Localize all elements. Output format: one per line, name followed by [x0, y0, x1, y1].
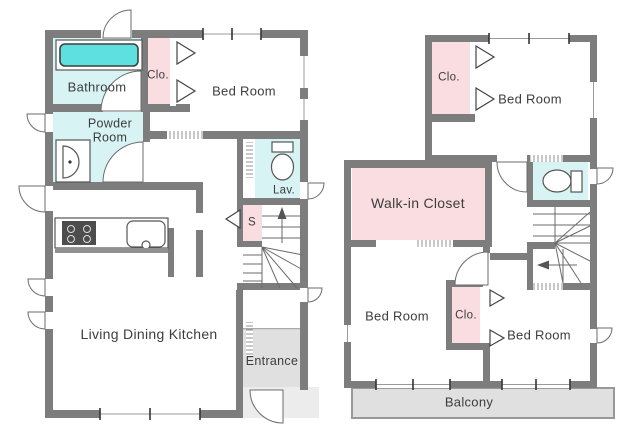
- floor-plan: Bathroom Clo. Bed Room Powder Room Lav. …: [0, 0, 640, 447]
- label-living-dining-kitchen: Living Dining Kitchen: [80, 326, 217, 342]
- label-powder-room: Powder Room: [76, 117, 144, 146]
- bedroom-door-arc: [455, 252, 488, 285]
- counter-edge: [55, 248, 168, 253]
- stove-icon: [62, 221, 96, 245]
- bifold-door-icon: [177, 80, 195, 102]
- label-storage: S: [248, 216, 256, 229]
- folding-door: [246, 322, 253, 358]
- folding-door: [167, 131, 203, 139]
- label-bathroom: Bathroom: [68, 81, 127, 96]
- label-entrance: Entrance: [246, 354, 298, 368]
- casement-window-arc: [597, 168, 613, 184]
- folding-door: [246, 142, 253, 178]
- toilet-icon: [543, 170, 571, 192]
- toilet-tank: [272, 142, 293, 152]
- bifold-door-icon: [476, 46, 494, 68]
- label-closet2: Clo.: [438, 71, 460, 84]
- label-bedroom4: Bed Room: [507, 329, 571, 344]
- sink-drain: [68, 160, 71, 163]
- casement-window-arc: [597, 328, 612, 343]
- small-window: [530, 155, 563, 162]
- casement-window-arc: [28, 312, 45, 329]
- entrance-step: [243, 328, 300, 330]
- bifold-door-icon: [177, 42, 195, 64]
- label-bedroom1: Bed Room: [212, 85, 276, 100]
- toilet-door-arc: [497, 162, 527, 192]
- bathtub-icon: [60, 44, 138, 66]
- faucet-icon: [142, 241, 150, 249]
- exterior-door-arc: [103, 10, 131, 38]
- casement-window-arc: [308, 288, 322, 302]
- casement-window-arc: [28, 279, 45, 296]
- front-door-arc: [250, 390, 283, 423]
- label-walk-in-closet: Walk-in Closet: [371, 195, 465, 211]
- label-bedroom3: Bed Room: [365, 310, 429, 325]
- bifold-door-icon: [490, 330, 504, 346]
- floor2: [344, 33, 614, 418]
- toilet-tank: [571, 171, 582, 192]
- floor2-fixtures: [543, 170, 582, 192]
- label-closet1: Clo.: [147, 69, 169, 82]
- bifold-door-icon: [476, 88, 494, 110]
- casement-window-arc: [19, 186, 45, 212]
- sliding-door: [415, 240, 453, 247]
- bifold-door-icon: [226, 210, 240, 228]
- stairs-down-arrow: [537, 261, 549, 270]
- stair-rail: [533, 283, 563, 290]
- label-bedroom2: Bed Room: [498, 93, 562, 108]
- floor-plan-canvas: [0, 0, 640, 447]
- casement-window-arc: [27, 114, 45, 132]
- toilet-icon: [272, 154, 294, 180]
- bifold-door-icon: [490, 290, 504, 306]
- lavatory-door-arc: [308, 183, 324, 199]
- label-lavatory: Lav.: [273, 184, 295, 197]
- label-closet3: Clo.: [455, 309, 477, 322]
- label-balcony: Balcony: [445, 396, 493, 411]
- stairs-up-arrow: [278, 207, 287, 219]
